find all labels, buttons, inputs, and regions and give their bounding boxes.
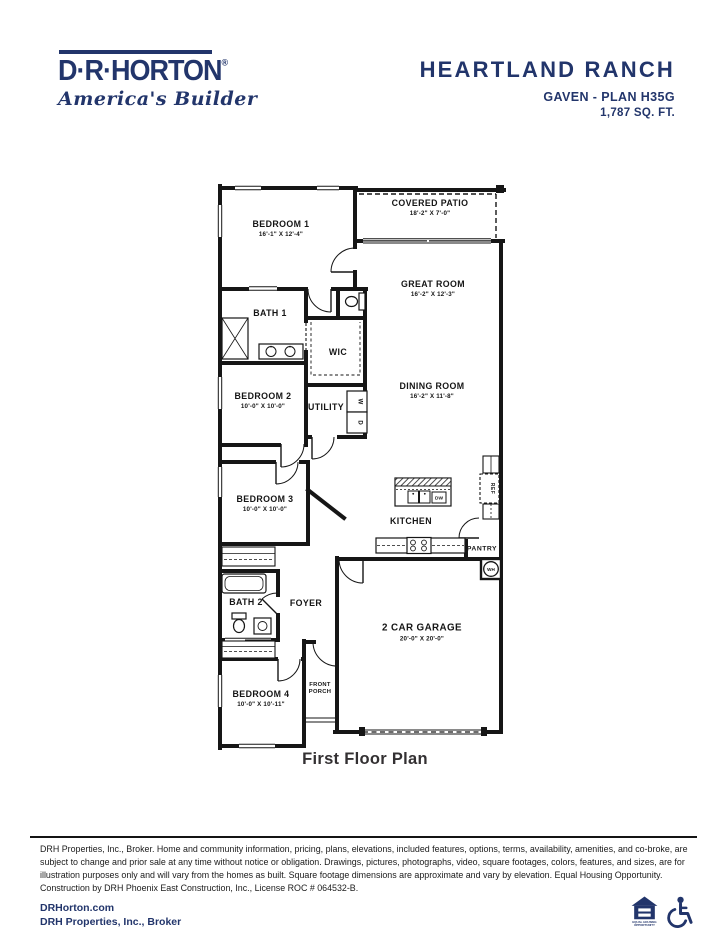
website-link[interactable]: DRHorton.com xyxy=(40,902,181,916)
drhorton-logo: D·R·HORTON® America's Builder xyxy=(58,50,228,110)
island-sink-2 xyxy=(420,491,431,503)
wh-label: WH xyxy=(487,567,495,572)
wall-openings xyxy=(217,185,491,749)
logo-wordmark: D·R·HORTON® xyxy=(58,57,228,85)
footer-divider xyxy=(30,836,697,838)
floor-plan: REF DW WH W D COVERED PATIO 18'-2" X 7'-… xyxy=(213,181,513,761)
range xyxy=(407,538,431,554)
room-label-front-porch: FRONT PORCH xyxy=(303,682,337,696)
footer-links: DRHorton.com DRH Properties, Inc., Broke… xyxy=(40,902,181,929)
dryer-label: D xyxy=(357,420,363,425)
patio-post xyxy=(496,185,504,193)
room-label-wic: WIC xyxy=(329,348,347,358)
garage-door-jamb-right xyxy=(481,727,487,736)
walls xyxy=(220,186,504,748)
logo-name: D·R·HORTON xyxy=(58,55,221,86)
community-name: HEARTLAND RANCH xyxy=(420,57,675,83)
kitchen-counter xyxy=(376,538,465,554)
toilet-1 xyxy=(359,293,365,310)
room-label-pantry: PANTRY xyxy=(467,545,497,552)
dw-label: DW xyxy=(435,496,443,502)
logo-tagline: America's Builder xyxy=(58,88,228,110)
equal-housing-icon: EQUAL HOUSING OPPORTUNITY xyxy=(631,896,658,927)
garage-door-jamb-left xyxy=(359,727,365,736)
room-label-bedroom-3: BEDROOM 3 10'-0" X 10'-0" xyxy=(237,495,294,513)
plan-name: GAVEN - PLAN H35G xyxy=(420,90,675,104)
room-label-garage: 2 CAR GARAGE 20'-0" X 20'-0" xyxy=(382,623,462,642)
footer-icons: EQUAL HOUSING OPPORTUNITY xyxy=(631,896,695,929)
flyer-page: D·R·HORTON® America's Builder HEARTLAND … xyxy=(0,0,727,944)
disclaimer-text: DRH Properties, Inc., Broker. Home and c… xyxy=(40,843,697,895)
room-label-bedroom-2: BEDROOM 2 10'-0" X 10'-0" xyxy=(235,392,292,410)
room-label-dining-room: DINING ROOM 16'-2" X 11'-8" xyxy=(400,382,465,400)
island-sink-1 xyxy=(408,491,419,503)
kitchen-island xyxy=(395,478,451,506)
accessibility-icon xyxy=(664,896,695,929)
plan-header: HEARTLAND RANCH GAVEN - PLAN H35G 1,787 … xyxy=(420,57,675,119)
logo-bar xyxy=(59,50,212,54)
equal-housing-text-2: OPPORTUNITY xyxy=(634,923,655,927)
room-label-bedroom-1: BEDROOM 1 16'-1" X 12'-4" xyxy=(253,220,310,238)
room-label-great-room: GREAT ROOM 16'-2" X 12'-3" xyxy=(401,280,465,298)
closet-1 xyxy=(222,547,275,566)
square-footage: 1,787 SQ. FT. xyxy=(420,107,675,119)
broker-line: DRH Properties, Inc., Broker xyxy=(40,916,181,928)
registered-mark: ® xyxy=(221,57,228,68)
room-label-utility: UTILITY xyxy=(308,403,344,413)
floor-plan-caption: First Floor Plan xyxy=(215,750,515,769)
room-label-bedroom-4: BEDROOM 4 10'-0" X 10'-11" xyxy=(233,690,290,708)
floor-plan-drawing: REF DW WH W D xyxy=(213,181,513,761)
room-label-foyer: FOYER xyxy=(290,599,322,609)
ref-label: REF xyxy=(489,483,495,495)
room-label-kitchen: KITCHEN xyxy=(390,517,432,527)
washer-label: W xyxy=(357,399,363,405)
room-label-bath-1: BATH 1 xyxy=(253,309,287,319)
porch-step xyxy=(304,718,337,722)
room-label-bath-2: BATH 2 xyxy=(229,598,263,608)
room-label-covered-patio: COVERED PATIO 18'-2" X 7'-0" xyxy=(392,199,469,217)
closet-2 xyxy=(222,641,275,658)
toilet-2 xyxy=(232,613,246,619)
